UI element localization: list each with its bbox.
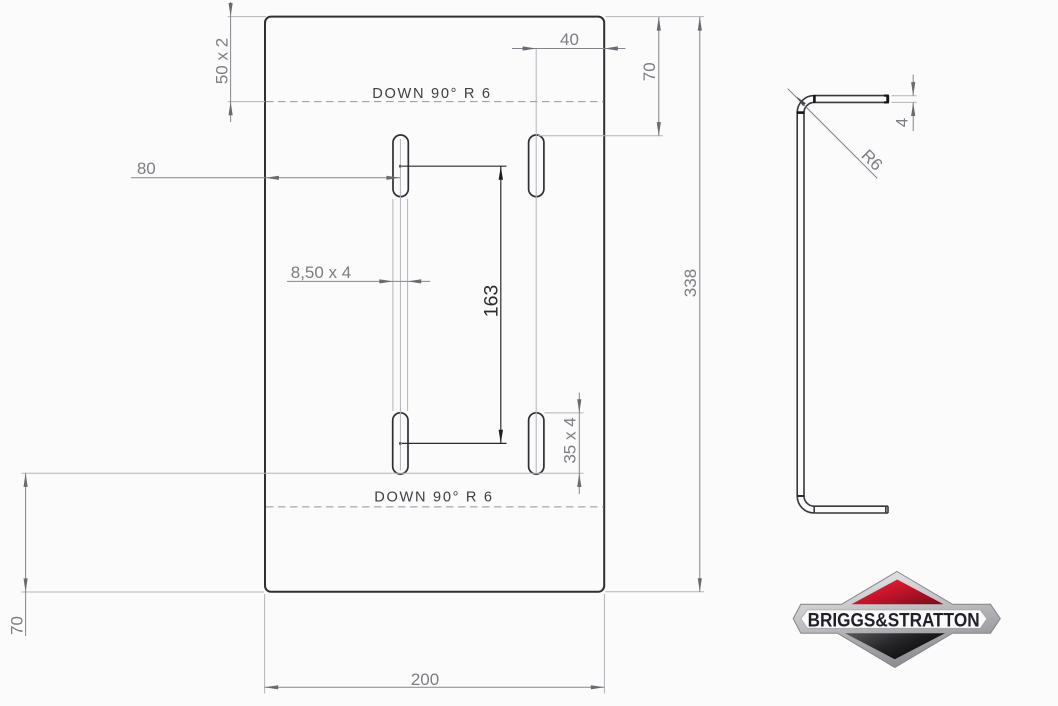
svg-text:4: 4 (893, 118, 912, 127)
svg-text:DOWN 90° R 6: DOWN 90° R 6 (374, 489, 494, 505)
svg-text:338: 338 (681, 269, 700, 297)
svg-text:DOWN 90° R 6: DOWN 90° R 6 (372, 86, 492, 102)
svg-text:50 x 2: 50 x 2 (212, 38, 231, 84)
svg-text:70: 70 (7, 616, 26, 635)
svg-text:8,50 x 4: 8,50 x 4 (291, 263, 352, 282)
svg-text:BRIGGS&STRATTON: BRIGGS&STRATTON (808, 610, 980, 631)
svg-text:163: 163 (481, 285, 503, 318)
svg-text:35 x 4: 35 x 4 (561, 417, 580, 463)
svg-text:70: 70 (640, 62, 659, 81)
svg-text:40: 40 (560, 30, 579, 49)
svg-text:80: 80 (137, 159, 156, 178)
svg-text:200: 200 (411, 670, 439, 689)
